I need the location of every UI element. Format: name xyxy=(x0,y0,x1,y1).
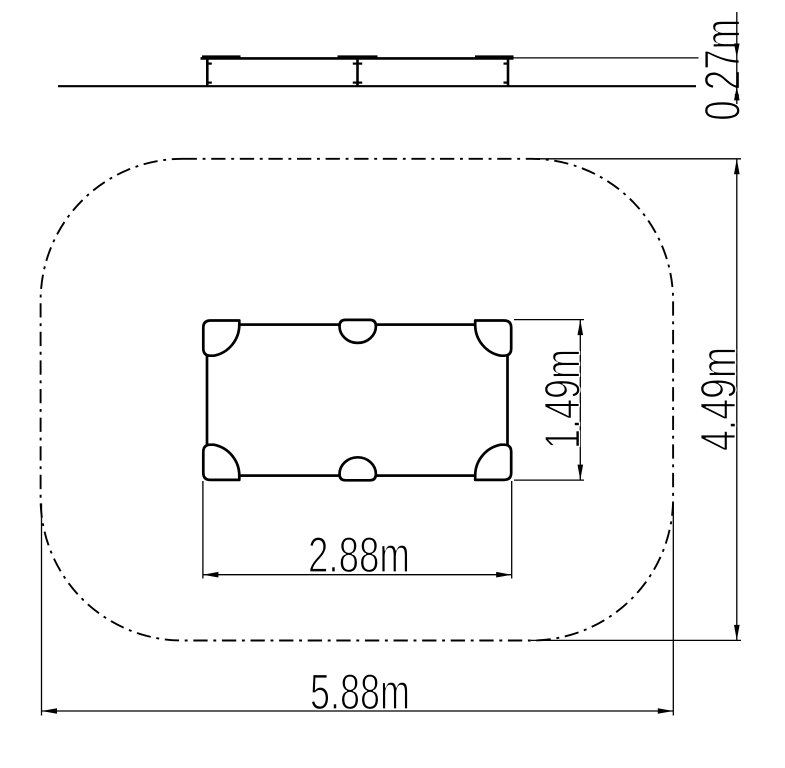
svg-text:2.88m: 2.88m xyxy=(308,527,410,583)
svg-text:0.27m: 0.27m xyxy=(695,19,751,121)
svg-text:4.49m: 4.49m xyxy=(691,347,747,451)
svg-text:5.88m: 5.88m xyxy=(310,664,410,720)
svg-text:1.49m: 1.49m xyxy=(535,349,591,449)
